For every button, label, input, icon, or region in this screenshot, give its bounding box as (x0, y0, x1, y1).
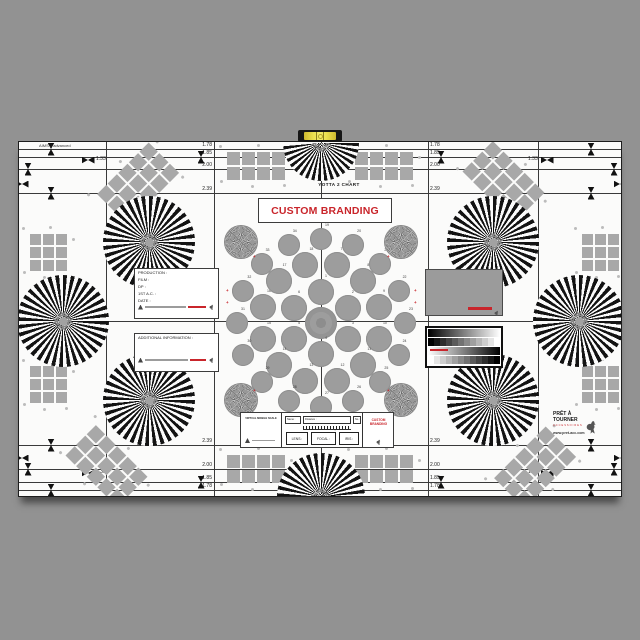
registration-dot (577, 459, 581, 463)
registration-dot (58, 450, 62, 454)
focus-circle-number: 6 (298, 291, 300, 295)
focus-circle (388, 344, 410, 366)
gray-square (385, 152, 398, 165)
brand-name-line2: TOURNER (553, 417, 578, 423)
edge-grid (582, 366, 621, 405)
focus-circle (310, 228, 332, 250)
star-core (145, 238, 154, 247)
aspect-ratio-label: 1.85 (430, 151, 462, 156)
gray-square (582, 392, 593, 403)
rooster-logo-icon (208, 298, 215, 316)
gray-square (30, 366, 41, 377)
registration-dot (543, 199, 547, 203)
focus-circle-number: 34 (293, 230, 297, 234)
gray-square (582, 366, 593, 377)
custom-branding-banner: CUSTOM BRANDING (258, 198, 392, 223)
micro-print (145, 306, 186, 308)
focus-circle-number: 9 (383, 290, 385, 294)
film-field: FILM : (135, 276, 218, 283)
red-registration-mark: + (387, 255, 390, 260)
registration-dot (86, 192, 90, 196)
focus-circle-number: 26 (357, 386, 361, 390)
dp-field: DP : (135, 283, 218, 290)
slate-custom-branding: CUSTOM BRANDING (364, 419, 393, 426)
siemens-star (533, 275, 622, 367)
additional-info-header: ADDITIONAL INFORMATION : (135, 334, 218, 341)
focus-circle-number: 23 (409, 308, 413, 312)
level-bubble (318, 134, 323, 139)
gray-square (257, 152, 270, 165)
brand-tagline: ACCESSOIRES (553, 424, 583, 427)
gray-square (595, 392, 606, 403)
red-registration-mark: + (414, 301, 417, 306)
registration-dot (65, 407, 68, 410)
rooster-logo-icon (583, 405, 600, 448)
registration-dot (117, 159, 121, 163)
gray-square (227, 152, 240, 165)
bowtie-marker-icon (614, 181, 623, 188)
bowtie-marker-icon (614, 455, 623, 462)
red-registration-mark: + (387, 389, 390, 394)
focus-circle-number: 10 (383, 322, 387, 326)
focus-circle-number: 19 (325, 224, 329, 228)
gray-square (30, 234, 41, 245)
gray-square (43, 260, 54, 271)
focus-circle-number: 4 (325, 337, 327, 341)
gray-square (30, 392, 41, 403)
slate-warning (245, 438, 275, 443)
gray-square (56, 366, 67, 377)
registration-dot (575, 271, 578, 274)
aspect-ratio-label: 2.39 (180, 187, 212, 192)
red-micro-print (430, 349, 448, 351)
edge-grid (30, 234, 69, 273)
aspect-frame-line (428, 142, 429, 496)
name-field: Name : (285, 416, 301, 424)
gray-square (43, 366, 54, 377)
red-registration-mark: + (226, 301, 229, 306)
brand-website: www.pret-acc.com (553, 431, 585, 435)
bowtie-marker-icon (18, 181, 29, 188)
gray-square (370, 167, 383, 180)
center-focus-circle (305, 307, 337, 339)
iris-field: IRIS : (339, 432, 359, 445)
registration-dot (125, 445, 129, 449)
gray-square (242, 455, 255, 468)
focus-circle (308, 279, 334, 305)
slate-divider (362, 413, 363, 447)
red-registration-mark: + (226, 289, 229, 294)
gray-square (227, 167, 240, 180)
focus-circle-number: 11 (367, 348, 371, 352)
gray-square (400, 455, 413, 468)
red-micro-print (190, 359, 206, 361)
camera-slate: VIRTUAL MOBILE SCALE Name : Distance : N… (240, 412, 394, 448)
registration-dot (93, 414, 97, 418)
edge-grid (582, 234, 621, 273)
registration-dot (411, 487, 414, 490)
focus-circle-number: 18 (309, 248, 313, 252)
focus-circle (388, 280, 410, 302)
vial-mark (323, 132, 324, 140)
focus-circle (292, 368, 318, 394)
registration-dot (155, 141, 159, 143)
focus-circle (278, 234, 300, 256)
gray-square (608, 260, 619, 271)
rooster-icon (208, 357, 215, 364)
red-micro-print (188, 306, 206, 308)
focus-circle-number: 27 (325, 392, 329, 396)
gray-square (582, 260, 593, 271)
aspect-ratio-label: 1.78 (180, 484, 212, 489)
gray-square (56, 234, 67, 245)
gray-square (582, 379, 593, 390)
gray-square (43, 392, 54, 403)
gray-square (242, 152, 255, 165)
focus-circle-number: 1 (325, 275, 327, 279)
focus-circle-number: 31 (241, 308, 245, 312)
focus-circle-number: 29 (266, 367, 270, 371)
star-core (489, 238, 498, 247)
focus-circle-number: 28 (293, 386, 297, 390)
red-registration-mark: + (414, 289, 417, 294)
aspect-ratio-label: 2.39 (430, 439, 462, 444)
focus-circle-number: 14 (283, 348, 287, 352)
focus-circle (335, 295, 361, 321)
gray-square (370, 152, 383, 165)
rooster-logo-icon (208, 351, 215, 369)
focus-circle-number: 17 (283, 264, 287, 268)
grayscale-row-stepped-reverse (428, 356, 500, 364)
edge-grid (30, 366, 69, 405)
registration-dot (220, 483, 223, 486)
focus-circle (394, 312, 416, 334)
gray-square (582, 234, 593, 245)
aspect-ratio-label: 1.85 (430, 476, 462, 481)
aspect-ratio-label: 2.39 (430, 187, 462, 192)
focus-circle-number: 33 (266, 249, 270, 253)
focus-circle-number: 3 (352, 322, 354, 326)
test-chart-scene: 1.781.781.851.852.002.002.392.392.392.39… (0, 0, 640, 640)
gray-square (242, 167, 255, 180)
aspect-ratio-label-133: 1.33 (528, 157, 540, 162)
first-ac-field: 1ST A.C. : (135, 290, 218, 297)
focus-circle (342, 390, 364, 412)
registration-dot (522, 161, 526, 165)
gray-square (30, 379, 41, 390)
gray-square (227, 470, 240, 483)
focus-circle (366, 294, 392, 320)
gray-square (400, 470, 413, 483)
registration-dot (219, 145, 222, 148)
vial-mark (316, 132, 317, 140)
gray-square (608, 379, 619, 390)
gray-square (227, 455, 240, 468)
red-micro-print (468, 307, 492, 310)
registration-dot (220, 180, 223, 183)
focus-ruler-chars: ABCDEFGHIJKLMNOPQRSTUVW (303, 429, 351, 432)
gray-square (43, 247, 54, 258)
focus-circle (281, 295, 307, 321)
gray-square (56, 392, 67, 403)
brand-logo-block: PRÊT À TOURNER ACCESSOIRES www.pret-acc.… (553, 405, 605, 445)
grayscale-wedge-patch (425, 326, 503, 368)
registration-dot (418, 459, 421, 462)
grayscale-row-stepped (428, 338, 500, 346)
registration-dot (601, 226, 604, 229)
star-core (59, 317, 68, 326)
registration-dot (251, 185, 254, 188)
half-siemens-star-top (283, 143, 359, 181)
production-box-footer (138, 298, 215, 316)
focus-circle (226, 312, 248, 334)
warning-icon (138, 305, 143, 310)
gray-square (43, 379, 54, 390)
registration-dot (22, 359, 25, 362)
registration-dot (43, 408, 46, 411)
registration-dot (23, 403, 26, 406)
grayscale-row-smooth (428, 329, 500, 337)
focus-circle (232, 280, 254, 302)
virtual-scale-label: VIRTUAL MOBILE SCALE (243, 417, 279, 420)
gray-square (30, 260, 41, 271)
rooster-icon (375, 439, 382, 446)
gray-square (56, 260, 67, 271)
aspect-ratio-label: 2.00 (180, 163, 212, 168)
custom-branding-text: CUSTOM BRANDING (259, 199, 391, 222)
focus-circle (278, 390, 300, 412)
registration-dot (251, 488, 254, 491)
half-siemens-star-bottom (277, 453, 365, 497)
gray-square (582, 247, 593, 258)
focus-circle (250, 326, 276, 352)
focus-circle (292, 252, 318, 278)
aspect-ratio-label: 1.78 (180, 143, 212, 148)
slate-divider (281, 413, 282, 447)
focus-circle-number: 32 (247, 276, 251, 280)
focus-circle-number: 13 (309, 364, 313, 368)
gray-square (608, 366, 619, 377)
focus-circle (324, 252, 350, 278)
micro-print (252, 440, 275, 442)
warning-icon (138, 358, 143, 363)
gray-square (385, 455, 398, 468)
chart-board: 1.781.781.851.852.002.002.392.392.392.39… (18, 141, 622, 497)
bowtie-marker-icon (18, 455, 29, 462)
gray-square (370, 455, 383, 468)
star-core (575, 317, 584, 326)
aspect-frame-line (214, 142, 215, 496)
gray-square (400, 152, 413, 165)
focus-circle-number: 12 (341, 364, 345, 368)
no-field: No : (353, 416, 361, 424)
gray-square (43, 234, 54, 245)
red-registration-mark: + (253, 389, 256, 394)
aspect-ratio-label: 1.85 (180, 151, 212, 156)
registration-dot (483, 476, 487, 480)
spirit-level-vial (304, 132, 336, 140)
registration-dot (146, 483, 150, 487)
registration-dot (385, 144, 388, 147)
gray-square (370, 470, 383, 483)
focus-circle-number: 15 (267, 322, 271, 326)
spirit-level (298, 130, 342, 142)
registration-dot (347, 448, 350, 451)
additional-info-box: ADDITIONAL INFORMATION : (134, 333, 219, 372)
registration-dot (574, 227, 577, 230)
registration-dot (617, 275, 620, 278)
rooster-logo-icon (375, 433, 382, 451)
focus-circle (342, 234, 364, 256)
gray-square (595, 379, 606, 390)
rooster-logo-icon (493, 304, 500, 322)
standard-label: AIMS 2 advanced (39, 143, 71, 148)
focus-circle (232, 344, 254, 366)
aspect-ratio-label: 2.39 (180, 439, 212, 444)
gray-square (595, 234, 606, 245)
registration-dot (411, 184, 414, 187)
info-box-footer (138, 351, 215, 369)
focus-circle (335, 326, 361, 352)
siemens-star (283, 143, 359, 181)
focus-circle-number: 24 (403, 340, 407, 344)
registration-dot (23, 271, 26, 274)
registration-dot (418, 156, 421, 159)
gray-square (257, 470, 270, 483)
gray-square (56, 247, 67, 258)
flank-grid (355, 152, 415, 182)
registration-dot (22, 227, 25, 230)
aspect-ratio-label: 2.00 (180, 463, 212, 468)
aspect-ratio-label: 1.78 (430, 143, 462, 148)
gray-square (608, 234, 619, 245)
production-field: PRODUCTION : (135, 269, 218, 276)
rooster-icon (208, 304, 215, 311)
warning-icon (245, 438, 250, 443)
registration-dot (514, 443, 518, 447)
registration-dot (219, 448, 222, 451)
registration-dot (49, 226, 52, 229)
focus-circle (250, 294, 276, 320)
gray-square (595, 260, 606, 271)
focus-circle-number: 30 (247, 340, 251, 344)
aspect-ratio-label: 2.00 (430, 463, 462, 468)
gray-square (385, 167, 398, 180)
star-core (145, 396, 154, 405)
registration-dot (455, 166, 459, 170)
gray-square (400, 167, 413, 180)
red-registration-mark: + (253, 255, 256, 260)
focus-circle-number: 2 (352, 291, 354, 295)
gray-square (595, 366, 606, 377)
gray-card-patch (425, 269, 503, 316)
gray-square (257, 455, 270, 468)
focus-circle-number: 25 (384, 367, 388, 371)
registration-dot (257, 144, 260, 147)
gray-square (385, 470, 398, 483)
gray-square (242, 470, 255, 483)
flank-grid (227, 152, 287, 182)
grayscale-row-smooth-reverse (428, 347, 500, 355)
lens-field: LENS : (286, 432, 308, 445)
gray-square (595, 247, 606, 258)
focus-circle-number: 20 (357, 230, 361, 234)
gray-square (56, 379, 67, 390)
focus-circle-number: 22 (403, 276, 407, 280)
registration-dot (180, 175, 184, 179)
aspect-ratio-label: 1.85 (180, 476, 212, 481)
focal-field: FOCAL : (311, 432, 336, 445)
registration-dot (379, 488, 382, 491)
registration-dot (72, 370, 75, 373)
rooster-icon (583, 419, 600, 436)
chart-title: YOTTA 2 CHART (281, 182, 397, 187)
gray-square (257, 167, 270, 180)
rooster-icon (493, 310, 500, 317)
registration-dot (72, 238, 75, 241)
star-core (489, 396, 498, 405)
gray-square (608, 392, 619, 403)
distance-field: Distance : (303, 416, 351, 424)
siemens-star (18, 275, 109, 367)
aspect-ratio-label-133: 1.33 (96, 157, 108, 162)
gray-square (30, 247, 41, 258)
aspect-ratio-label: 1.78 (430, 484, 462, 489)
registration-dot (617, 407, 620, 410)
focus-circle-number: 5 (298, 322, 300, 326)
siemens-star (277, 453, 365, 497)
production-box: PRODUCTION : FILM : DP : 1ST A.C. : DATE… (134, 268, 219, 319)
gray-square (608, 247, 619, 258)
micro-print (145, 359, 188, 361)
